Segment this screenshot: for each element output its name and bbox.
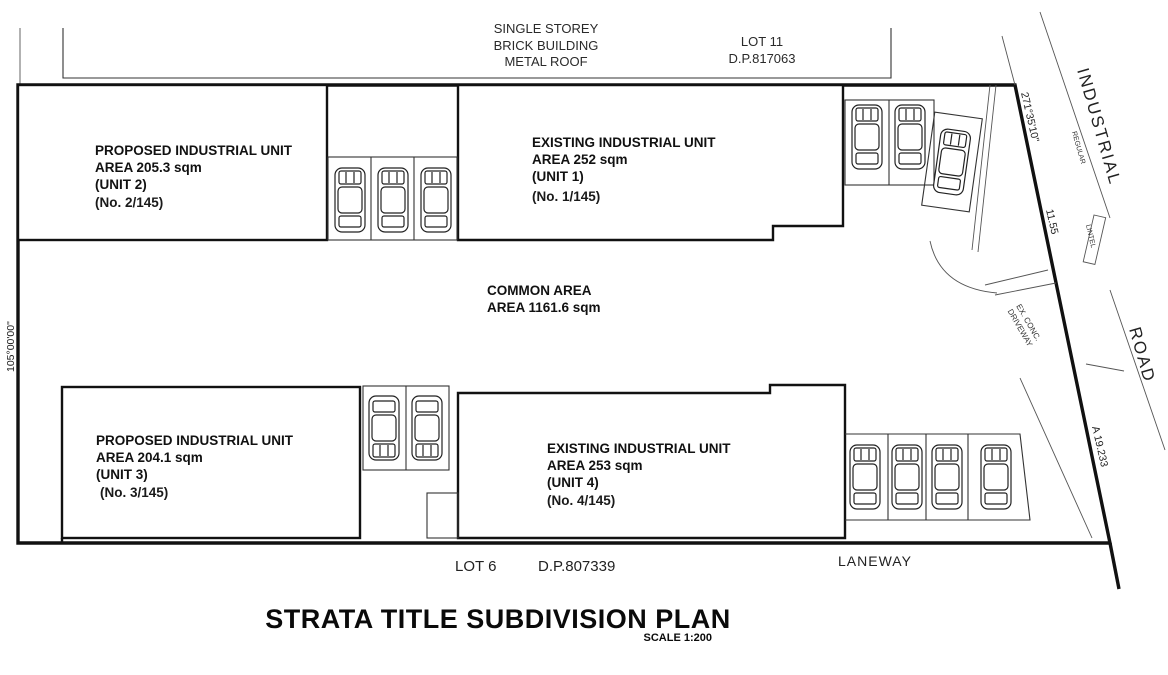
car-icon: [895, 105, 925, 169]
unit-4-store-box: [427, 493, 458, 538]
lot6-dp-label: D.P.807339: [538, 558, 615, 575]
strata-subdivision-plan: SINGLE STOREY BRICK BUILDING METAL ROOF …: [0, 0, 1168, 675]
car-icon: [852, 105, 882, 169]
unit-1-number: (UNIT 1): [532, 169, 584, 184]
unit-2-area: AREA 205.3 sqm: [95, 160, 202, 175]
left-bearing-label: 105°00'00": [5, 321, 17, 372]
unit-3-strata-no: (No. 3/145): [100, 485, 168, 500]
unit-4-strata-no: (No. 4/145): [547, 493, 615, 508]
unit-4-room: EXISTING INDUSTRIAL UNIT AREA 253 sqm (U…: [427, 385, 845, 538]
car-icon: [932, 445, 962, 509]
road-name-road: ROAD: [1125, 325, 1159, 385]
car-icon: [933, 128, 972, 196]
car-icon: [421, 168, 451, 232]
neighbor-building-label-1: SINGLE STOREY: [494, 21, 599, 36]
car-icon: [412, 396, 442, 460]
car-icon: [981, 445, 1011, 509]
unit-2-room: PROPOSED INDUSTRIAL UNIT AREA 205.3 sqm …: [18, 85, 327, 240]
plan-title: STRATA TITLE SUBDIVISION PLAN: [265, 604, 731, 634]
parking-bays-bottom-middle: [363, 386, 449, 470]
lot11-dp-label: D.P.817063: [729, 51, 796, 66]
unit-2-strata-no: (No. 2/145): [95, 195, 163, 210]
unit-3-type: PROPOSED INDUSTRIAL UNIT: [96, 433, 294, 448]
neighbor-building-label-3: METAL ROOF: [504, 54, 587, 69]
road-name-industrial: INDUSTRIAL: [1073, 66, 1125, 188]
unit-3-area: AREA 204.1 sqm: [96, 450, 203, 465]
lot11-label: LOT 11: [741, 34, 783, 49]
common-area-size: AREA 1161.6 sqm: [487, 300, 601, 315]
parking-bays-bottom-right: [845, 434, 1030, 520]
parking-bays-top-right: [845, 100, 982, 212]
laneway-label: LANEWAY: [838, 553, 912, 569]
lot6-label: LOT 6: [455, 558, 496, 575]
lintel-note: LINTEL: [1084, 224, 1096, 249]
unit-1-room: EXISTING INDUSTRIAL UNIT AREA 252 sqm (U…: [458, 85, 843, 240]
unit-1-area: AREA 252 sqm: [532, 152, 628, 167]
car-icon: [335, 168, 365, 232]
plan-scale: SCALE 1:200: [644, 632, 712, 644]
unit-2-type: PROPOSED INDUSTRIAL UNIT: [95, 143, 293, 158]
car-icon: [378, 168, 408, 232]
car-icon: [892, 445, 922, 509]
common-area-label: COMMON AREA: [487, 283, 592, 298]
plan-canvas: SINGLE STOREY BRICK BUILDING METAL ROOF …: [0, 0, 1168, 675]
unit-3-number: (UNIT 3): [96, 467, 148, 482]
unit-1-strata-no: (No. 1/145): [532, 189, 600, 204]
unit-4-area: AREA 253 sqm: [547, 458, 643, 473]
unit-1-type: EXISTING INDUSTRIAL UNIT: [532, 135, 716, 150]
unit-2-number: (UNIT 2): [95, 177, 147, 192]
parking-bays-top-middle: [328, 157, 457, 240]
car-icon: [850, 445, 880, 509]
unit-4-type: EXISTING INDUSTRIAL UNIT: [547, 441, 731, 456]
car-icon: [369, 396, 399, 460]
neighbor-building-label-2: BRICK BUILDING: [494, 38, 599, 53]
unit-3-room: PROPOSED INDUSTRIAL UNIT AREA 204.1 sqm …: [62, 387, 360, 543]
driveway-note: EX. CONC. DRIVEWAY: [1006, 303, 1044, 350]
road-regular-note: REGULAR: [1070, 131, 1086, 165]
unit-4-number: (UNIT 4): [547, 475, 599, 490]
